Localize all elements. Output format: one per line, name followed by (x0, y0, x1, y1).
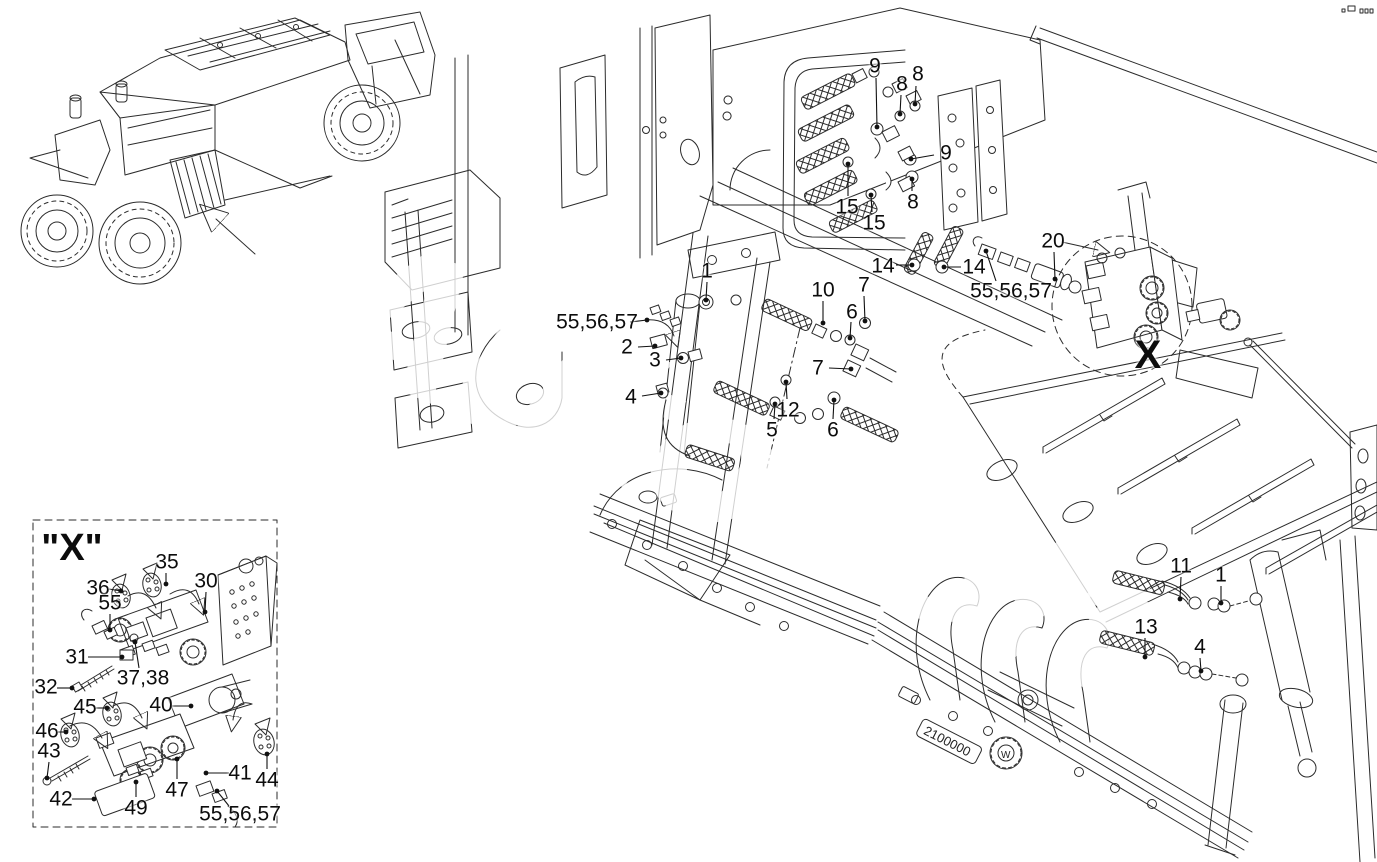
callout-31: 31 (65, 647, 88, 668)
leader-lines-layer (0, 0, 1377, 862)
callout-6: 6 (827, 420, 839, 441)
callout-47: 47 (165, 780, 188, 801)
callout-46: 46 (35, 721, 58, 742)
hydraulic-parts (33, 50, 1262, 827)
callout-49: 49 (124, 798, 147, 819)
callout-55-56-57: 55,56,57 (199, 804, 281, 825)
hydraulic-cylinder (1205, 530, 1375, 862)
callout-4: 4 (625, 387, 637, 408)
callout-36: 36 (86, 578, 109, 599)
seal-flange (109, 563, 164, 610)
callout-x: X (1135, 335, 1162, 375)
callout-35: 35 (155, 552, 178, 573)
callout-2: 2 (621, 337, 633, 358)
callout-3: 3 (649, 350, 661, 371)
callout-9: 9 (869, 56, 881, 77)
callout-4: 4 (1194, 637, 1206, 658)
callout-8: 8 (896, 74, 908, 95)
callout-20: 20 (1041, 231, 1064, 252)
black-arrow-machine (216, 219, 255, 254)
callout-15: 15 (835, 197, 858, 218)
diagram-artwork: 2100000 W AutoSoft (0, 0, 1377, 862)
callout-43: 43 (37, 741, 60, 762)
callout-55-56-57: 55,56,57 (970, 281, 1052, 302)
callout-13: 13 (1134, 617, 1157, 638)
machine-thumbnail (21, 12, 435, 284)
callout-1: 1 (1215, 565, 1227, 586)
hose-group-middle (645, 225, 1081, 472)
moldboard-assembly: 2100000 W (590, 469, 1252, 858)
callout-9: 9 (940, 143, 952, 164)
callout-44: 44 (255, 770, 278, 791)
callout-45: 45 (73, 697, 96, 718)
emblem-logo: W (990, 737, 1022, 769)
callout-40: 40 (149, 695, 172, 716)
callout-14: 14 (962, 257, 985, 278)
callout-1: 1 (701, 261, 713, 282)
detail-box (33, 520, 277, 827)
black-curved-arrow (233, 703, 252, 720)
callout-55-56-57: 55,56,57 (556, 312, 638, 333)
callout-12: 12 (776, 400, 799, 421)
black-curved-arrow (70, 723, 102, 738)
emblem-letter: W (1001, 750, 1011, 761)
callout-30: 30 (194, 571, 217, 592)
wheel-icon (21, 85, 400, 284)
callout-55: 55 (98, 593, 121, 614)
hose-cluster-top (783, 50, 1007, 250)
callout-8: 8 (907, 192, 919, 213)
callout-10: 10 (811, 280, 834, 301)
callout-5: 5 (766, 420, 778, 441)
serial-plate-text: 2100000 (921, 723, 973, 759)
hose-group-bottom (1099, 570, 1262, 686)
callout-32: 32 (34, 677, 57, 698)
callout-8: 8 (912, 64, 924, 85)
black-curved-arrow (645, 320, 674, 336)
manifold-plate (938, 80, 1007, 230)
callout-37-38: 37,38 (117, 668, 170, 689)
frame-structure: 2100000 W (385, 8, 1377, 862)
callout-11: 11 (1170, 556, 1192, 577)
corner-marks-icon (1342, 6, 1373, 13)
black-arrow-valve-block (1062, 242, 1098, 250)
parts-diagram-page: 2100000 W AutoSoft (0, 0, 1377, 862)
valve-block-circle (1052, 236, 1192, 376)
valve-block (1052, 236, 1240, 376)
callout-42: 42 (49, 789, 72, 810)
serial-plate: 2100000 (915, 718, 982, 765)
callout-6: 6 (846, 302, 858, 323)
watermark-text: AutoSoft (282, 185, 1203, 750)
callout-x: "X" (41, 529, 102, 567)
black-curved-arrow (170, 590, 199, 604)
callout-7: 7 (812, 358, 824, 379)
callout-7: 7 (858, 275, 870, 296)
callout-41: 41 (228, 763, 251, 784)
black-curved-arrow (128, 593, 156, 608)
callout-15: 15 (862, 213, 885, 234)
connector-chain (973, 237, 1081, 293)
deck-assembly (942, 330, 1377, 622)
callout-layer: 98898151514142055,56,5755,56,57110762347… (0, 0, 1377, 862)
black-curved-arrow (113, 703, 142, 718)
callout-14: 14 (871, 256, 894, 277)
